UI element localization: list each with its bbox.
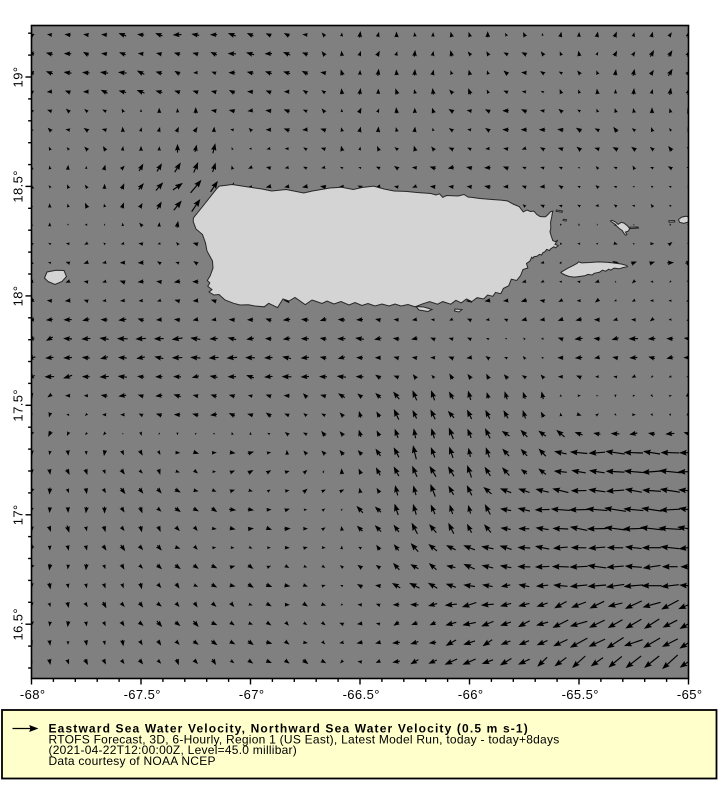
svg-text:-67.5°: -67.5° — [124, 687, 161, 702]
svg-text:17.5°: 17.5° — [11, 389, 26, 422]
svg-text:-68°: -68° — [20, 687, 46, 702]
svg-text:-67°: -67° — [239, 687, 265, 702]
svg-text:Data courtesy of NOAA NCEP: Data courtesy of NOAA NCEP — [49, 754, 216, 768]
svg-text:16.5°: 16.5° — [11, 608, 26, 641]
svg-text:17°: 17° — [11, 504, 26, 525]
svg-text:-65.5°: -65.5° — [562, 687, 599, 702]
svg-text:18.5°: 18.5° — [11, 170, 26, 203]
svg-text:-66.5°: -66.5° — [343, 687, 380, 702]
svg-text:-66°: -66° — [458, 687, 484, 702]
svg-text:19°: 19° — [11, 67, 26, 88]
svg-text:18°: 18° — [11, 285, 26, 306]
svg-text:-65°: -65° — [677, 687, 703, 702]
